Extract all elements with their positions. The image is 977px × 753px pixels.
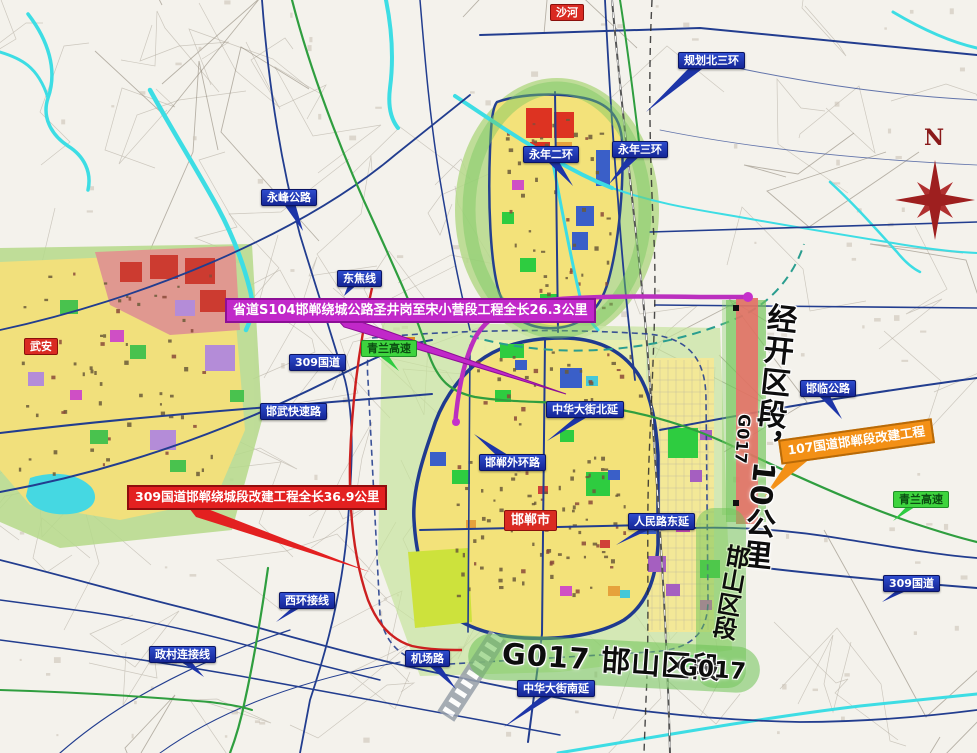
road-label-qinglan-west: 青兰高速 <box>361 340 417 357</box>
road-label-yongnian-ring2: 永年二环 <box>523 146 579 163</box>
city-label-shahe: 沙河 <box>550 4 584 21</box>
road-label-g309-east: 309国道 <box>883 575 940 592</box>
road-label-hanlin: 邯临公路 <box>800 380 856 397</box>
road-label-zhonghua-south: 中华大街南延 <box>517 680 595 697</box>
callout-s104-project: 省道S104邯郸绕城公路圣井岗至宋小营段工程全长26.3公里 <box>225 298 596 323</box>
road-label-zhonghua-north: 中华大街北延 <box>546 401 624 418</box>
city-label-wuan: 武安 <box>24 338 58 355</box>
road-label-outer-ring: 邯郸外环路 <box>479 454 546 471</box>
wuan-city-area <box>0 246 245 520</box>
section-g017-bottom-right: G017 <box>678 655 747 686</box>
road-label-zhengcun-link: 政村连接线 <box>149 646 216 663</box>
road-label-hanwu-expwy: 邯武快速路 <box>260 403 327 420</box>
road-label-north-ring: 规划北三环 <box>678 52 745 69</box>
road-label-g309-west: 309国道 <box>289 354 346 371</box>
road-label-yongfeng: 永峰公路 <box>261 189 317 206</box>
road-label-airport: 机场路 <box>405 650 450 667</box>
road-label-yongnian-ring3: 永年三环 <box>612 141 668 158</box>
road-label-xihuan-link: 西环接线 <box>279 592 335 609</box>
road-label-renmin-east: 人民路东延 <box>628 513 695 530</box>
callout-g309-project: 309国道邯郸绕城段改建工程全长36.9公里 <box>127 485 387 510</box>
city-label-handan: 邯郸市 <box>504 510 557 531</box>
road-label-qinglan-east: 青兰高速 <box>893 491 949 508</box>
map-canvas <box>0 0 977 753</box>
road-label-dongjiao: 东焦线 <box>337 270 382 287</box>
planning-map: N 沙河 武安 邯郸市 规划北三环 永年二环 永年三环 永峰公路 东焦线 309… <box>0 0 977 753</box>
compass-north-label: N <box>924 125 944 151</box>
